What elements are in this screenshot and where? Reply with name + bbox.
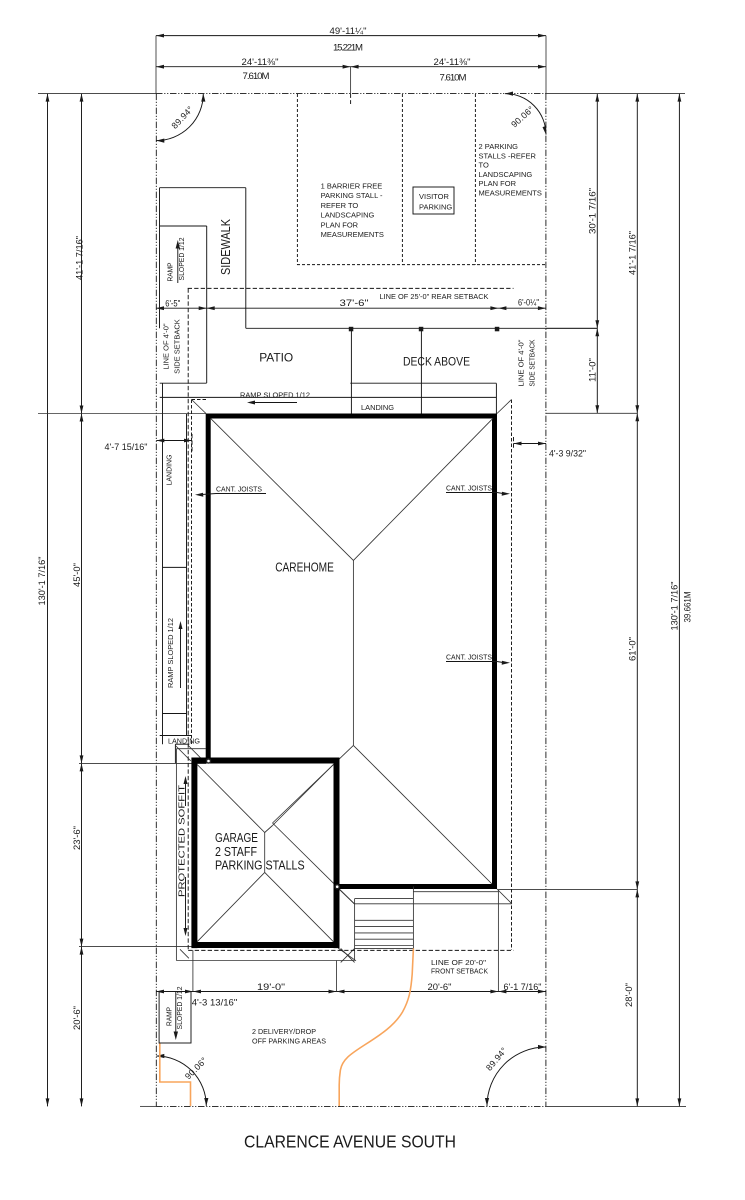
svg-text:28'-0": 28'-0" [624, 983, 635, 1007]
svg-text:4'-3 13/16": 4'-3 13/16" [192, 998, 238, 1009]
svg-text:PARKING STALL -: PARKING STALL - [321, 191, 383, 200]
svg-text:CANT. JOISTS: CANT. JOISTS [446, 484, 492, 493]
svg-text:PATIO: PATIO [259, 351, 293, 365]
svg-text:TO: TO [479, 161, 489, 170]
svg-text:20'-6": 20'-6" [72, 1006, 83, 1030]
svg-text:LANDSCAPING: LANDSCAPING [321, 211, 375, 220]
svg-text:6'-5": 6'-5" [165, 298, 180, 309]
svg-text:REFER TO: REFER TO [321, 201, 359, 210]
svg-text:PARKING STALLS: PARKING STALLS [215, 858, 305, 873]
svg-text:RAMP SLOPED 1/12: RAMP SLOPED 1/12 [240, 390, 310, 399]
svg-text:RAMP: RAMP [164, 1007, 173, 1026]
svg-text:VISITOR: VISITOR [419, 192, 449, 201]
svg-text:OFF PARKING AREAS: OFF PARKING AREAS [252, 1037, 326, 1046]
svg-text:1 BARRIER FREE: 1 BARRIER FREE [321, 182, 383, 191]
svg-text:CANT. JOISTS: CANT. JOISTS [216, 485, 262, 494]
svg-text:130'-1 7/16": 130'-1 7/16" [670, 582, 681, 631]
svg-text:SIDE SETBACK: SIDE SETBACK [528, 340, 537, 387]
svg-text:PARKING: PARKING [419, 203, 452, 212]
svg-text:7.610M: 7.610M [243, 71, 270, 82]
svg-text:RAMP SLOPED 1/12: RAMP SLOPED 1/12 [166, 618, 175, 688]
svg-text:11'-0": 11'-0" [588, 358, 599, 382]
svg-text:FRONT SETBACK: FRONT SETBACK [431, 967, 488, 976]
svg-text:SIDE SETBACK: SIDE SETBACK [173, 319, 182, 374]
svg-text:CLARENCE AVENUE SOUTH: CLARENCE AVENUE SOUTH [244, 1132, 456, 1152]
svg-text:130'-1 7/16": 130'-1 7/16" [37, 557, 48, 606]
svg-text:37'-6": 37'-6" [340, 298, 369, 309]
svg-text:2 DELIVERY/DROP: 2 DELIVERY/DROP [252, 1027, 316, 1036]
svg-text:CAREHOME: CAREHOME [275, 560, 334, 574]
svg-text:7.610M: 7.610M [440, 73, 467, 84]
svg-text:MEASUREMENTS: MEASUREMENTS [321, 230, 384, 239]
svg-text:PROTECTED SOFFIT: PROTECTED SOFFIT [177, 785, 187, 897]
svg-text:STALLS -REFER: STALLS -REFER [479, 151, 537, 160]
svg-text:LINE OF 4'-0": LINE OF 4'-0" [162, 323, 171, 370]
svg-text:LINE OF 4'-0": LINE OF 4'-0" [517, 339, 526, 386]
svg-text:15.221M: 15.221M [333, 43, 363, 54]
svg-text:24'-11⅜": 24'-11⅜" [434, 57, 471, 68]
svg-text:LANDSCAPING: LANDSCAPING [479, 170, 533, 179]
svg-text:6'-0¼": 6'-0¼" [518, 298, 539, 309]
svg-text:41'-1 7/16": 41'-1 7/16" [75, 236, 86, 280]
svg-text:2 STAFF: 2 STAFF [215, 844, 257, 859]
svg-text:LINE OF 25'-0" REAR SETBACK: LINE OF 25'-0" REAR SETBACK [380, 292, 489, 301]
svg-text:4'-7 15/16": 4'-7 15/16" [105, 442, 148, 453]
svg-text:GARAGE: GARAGE [215, 830, 258, 845]
svg-text:39.661M: 39.661M [683, 592, 694, 623]
svg-text:19'-0": 19'-0" [257, 982, 285, 993]
svg-text:6'-1 7/16": 6'-1 7/16" [504, 982, 542, 993]
svg-text:PLAN FOR: PLAN FOR [321, 220, 359, 229]
svg-text:SIDEWALK: SIDEWALK [218, 219, 233, 275]
svg-text:4'-3 9/32": 4'-3 9/32" [549, 449, 586, 460]
svg-text:MEASUREMENTS: MEASUREMENTS [479, 189, 542, 198]
svg-text:49'-11¼": 49'-11¼" [330, 26, 367, 37]
svg-text:24'-11⅜": 24'-11⅜" [242, 57, 279, 68]
svg-text:CANT. JOISTS: CANT. JOISTS [446, 653, 492, 662]
svg-text:2 PARKING: 2 PARKING [479, 142, 519, 151]
svg-text:PLAN FOR: PLAN FOR [479, 179, 517, 188]
svg-text:LANDING: LANDING [165, 454, 174, 485]
svg-text:23'-6": 23'-6" [72, 826, 83, 850]
svg-text:DECK ABOVE: DECK ABOVE [403, 355, 470, 369]
svg-text:RAMP: RAMP [166, 263, 175, 282]
svg-text:45'-0": 45'-0" [72, 563, 83, 587]
svg-text:61'-0": 61'-0" [628, 637, 639, 661]
svg-text:20'-6": 20'-6" [428, 982, 452, 993]
svg-text:LANDING: LANDING [361, 403, 394, 412]
svg-text:41'-1 7/16": 41'-1 7/16" [628, 231, 639, 275]
svg-text:30'-1 7/16": 30'-1 7/16" [588, 188, 599, 234]
